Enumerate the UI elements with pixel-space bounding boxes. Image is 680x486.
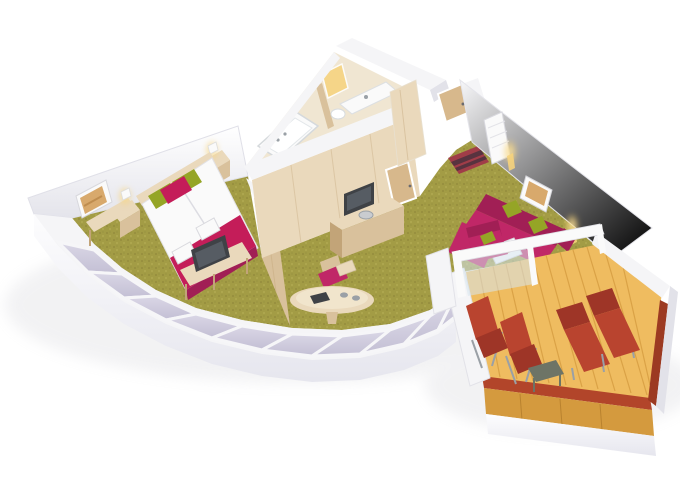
floorplan-canvas (0, 0, 680, 486)
suite-floorplan-render (0, 0, 680, 486)
cup (352, 295, 360, 300)
sink-bowl (359, 211, 373, 219)
toilet (331, 109, 345, 119)
door-handle (409, 185, 412, 188)
sink-basin (364, 95, 368, 99)
balcony (426, 224, 678, 456)
table-pedestal (326, 312, 338, 324)
faucet (283, 132, 286, 135)
bathroom-block (244, 52, 420, 258)
cup (340, 292, 348, 297)
